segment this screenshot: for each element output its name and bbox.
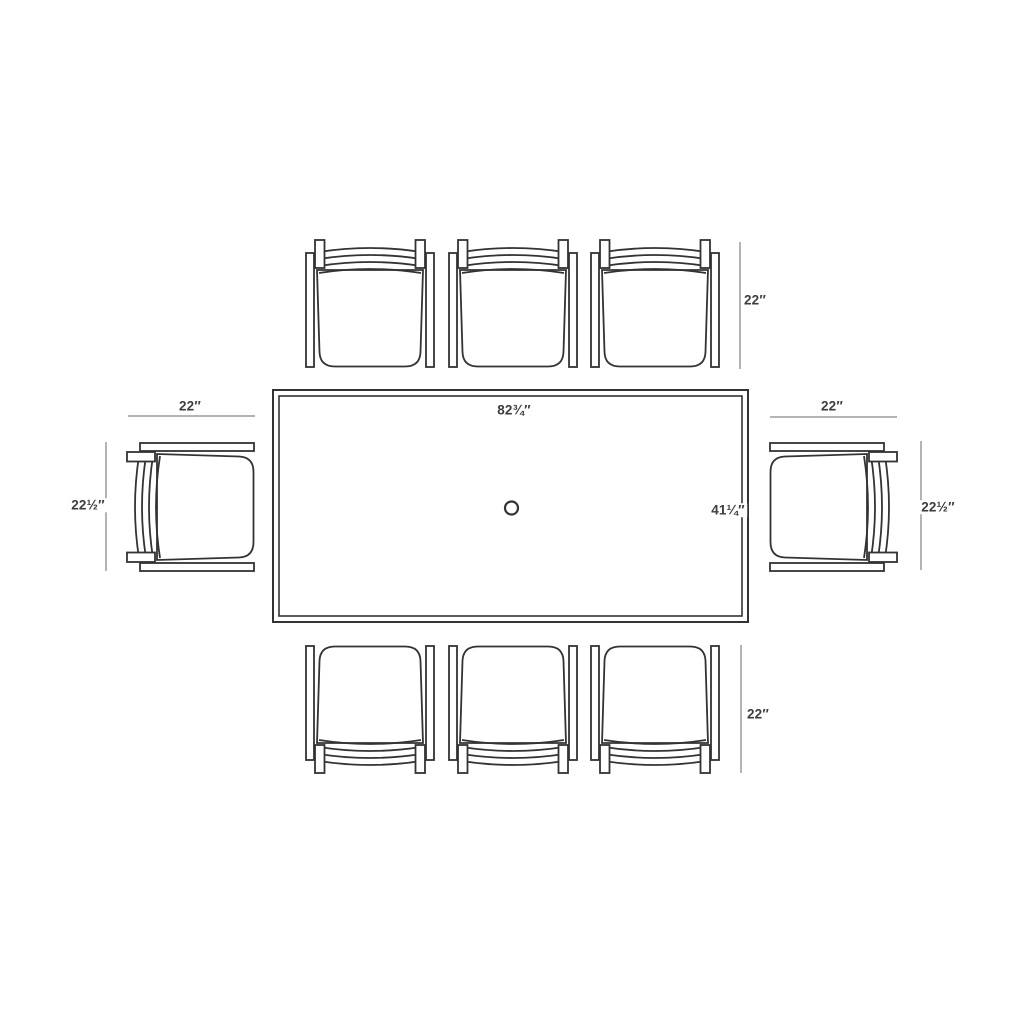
umbrella-hole xyxy=(505,502,518,515)
table-width-label: 41¼″ xyxy=(709,503,747,517)
bottom-chair-depth-label: 22″ xyxy=(745,707,771,721)
chair-top-1 xyxy=(306,240,434,367)
table-length-label: 82¾″ xyxy=(495,403,533,417)
chair-bottom-1 xyxy=(306,646,434,773)
chair-right-end xyxy=(770,443,897,571)
plan-drawing xyxy=(0,0,1024,1024)
chair-left-end xyxy=(127,443,254,571)
chair-bottom-3 xyxy=(591,646,719,773)
top-chair-depth-label: 22″ xyxy=(742,293,768,307)
furniture-group xyxy=(127,240,897,773)
furniture-dimension-diagram: 82¾″ 41¼″ 22″ 22″ 22″ 22″ 22½″ 22½″ xyxy=(0,0,1024,1024)
chair-top-3 xyxy=(591,240,719,367)
left-chair-depth-label: 22½″ xyxy=(69,498,107,512)
chair-top-2 xyxy=(449,240,577,367)
chair-bottom-2 xyxy=(449,646,577,773)
left-chair-width-label: 22″ xyxy=(177,399,203,413)
right-chair-width-label: 22″ xyxy=(819,399,845,413)
right-chair-depth-label: 22½″ xyxy=(919,500,957,514)
